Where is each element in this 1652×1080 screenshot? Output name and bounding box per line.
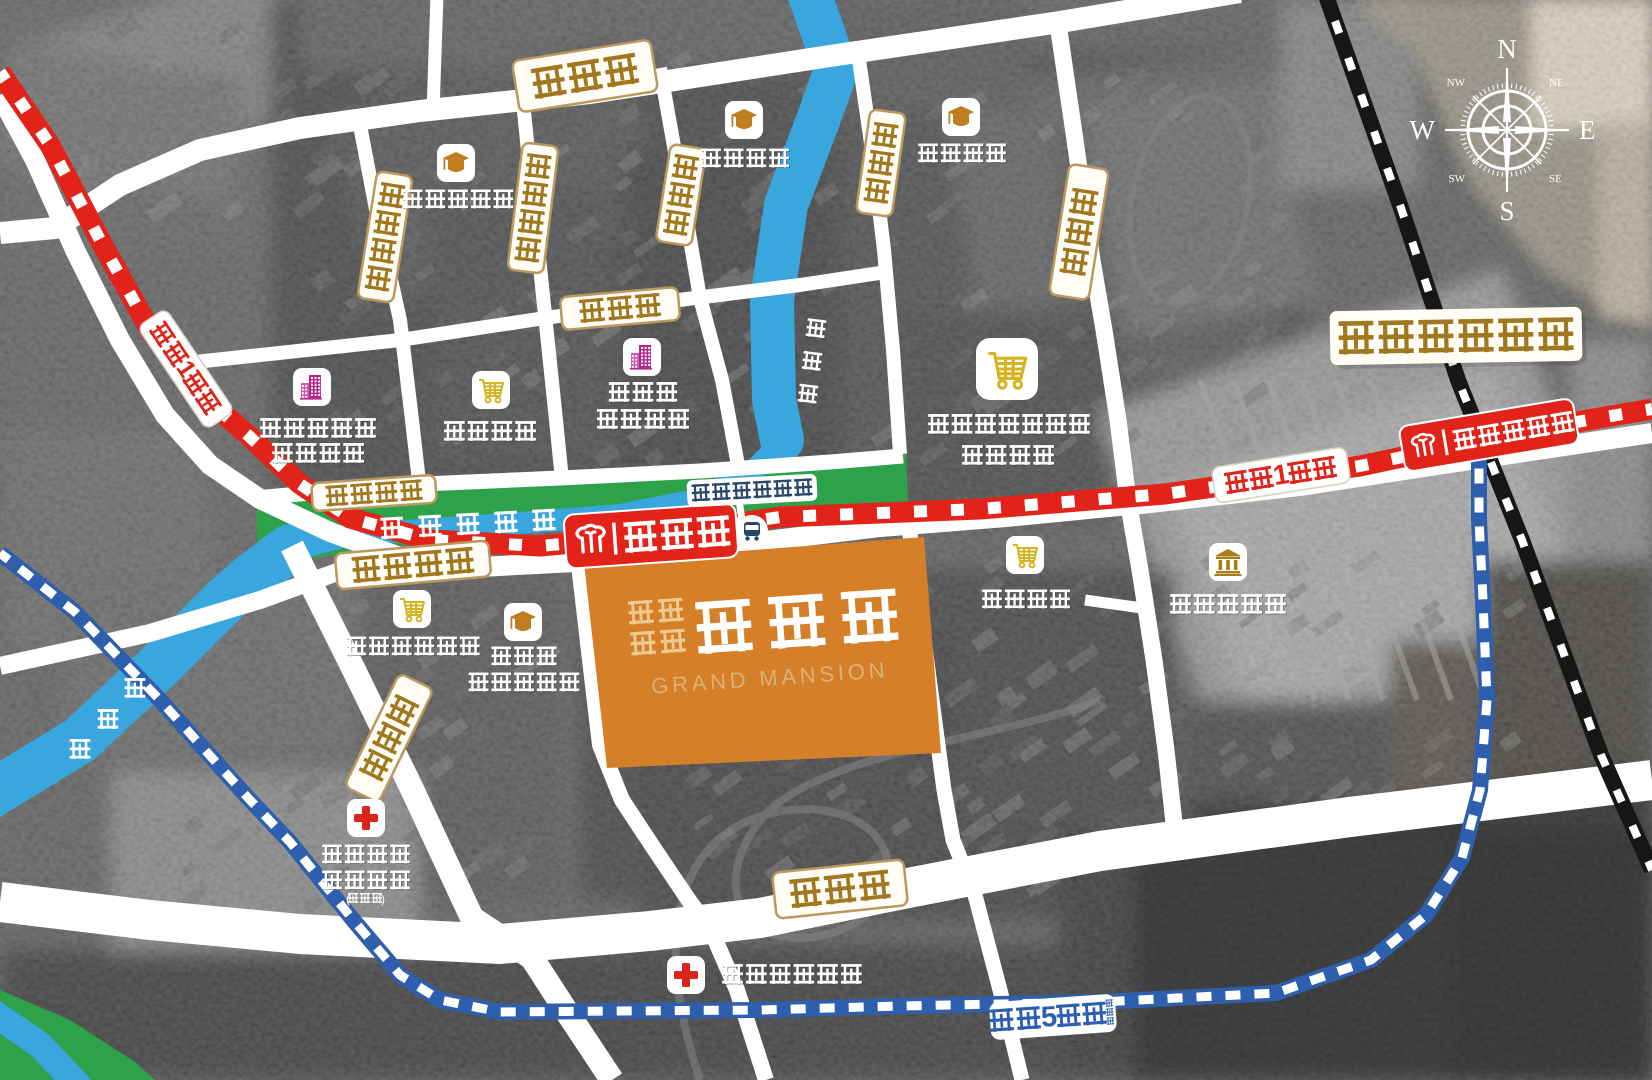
svg-text:SE: SE — [1549, 173, 1562, 185]
svg-text:E: E — [1579, 115, 1596, 145]
svg-text:): ) — [381, 892, 385, 906]
svg-text:S: S — [1499, 196, 1514, 226]
svg-text:SW: SW — [1449, 173, 1466, 185]
svg-text:5: 5 — [1040, 1001, 1058, 1034]
svg-text:NW: NW — [1447, 77, 1466, 89]
svg-text:N: N — [1497, 34, 1517, 64]
svg-text:W: W — [1410, 115, 1436, 145]
svg-text:NE: NE — [1549, 77, 1564, 89]
